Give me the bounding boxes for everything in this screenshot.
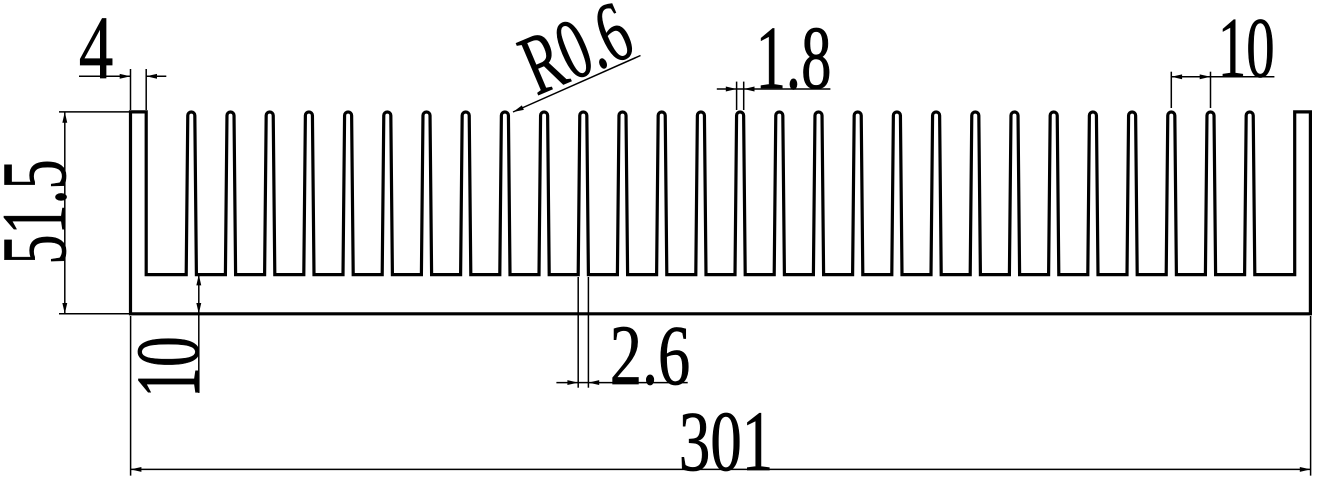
svg-text:301: 301 <box>679 395 773 486</box>
svg-text:51.5: 51.5 <box>0 159 85 264</box>
svg-text:10: 10 <box>1218 0 1275 95</box>
svg-text:1.8: 1.8 <box>756 8 832 108</box>
svg-text:2.6: 2.6 <box>610 308 691 403</box>
svg-text:10: 10 <box>117 336 217 397</box>
svg-text:4: 4 <box>79 0 113 98</box>
svg-text:R0.6: R0.6 <box>507 0 645 113</box>
